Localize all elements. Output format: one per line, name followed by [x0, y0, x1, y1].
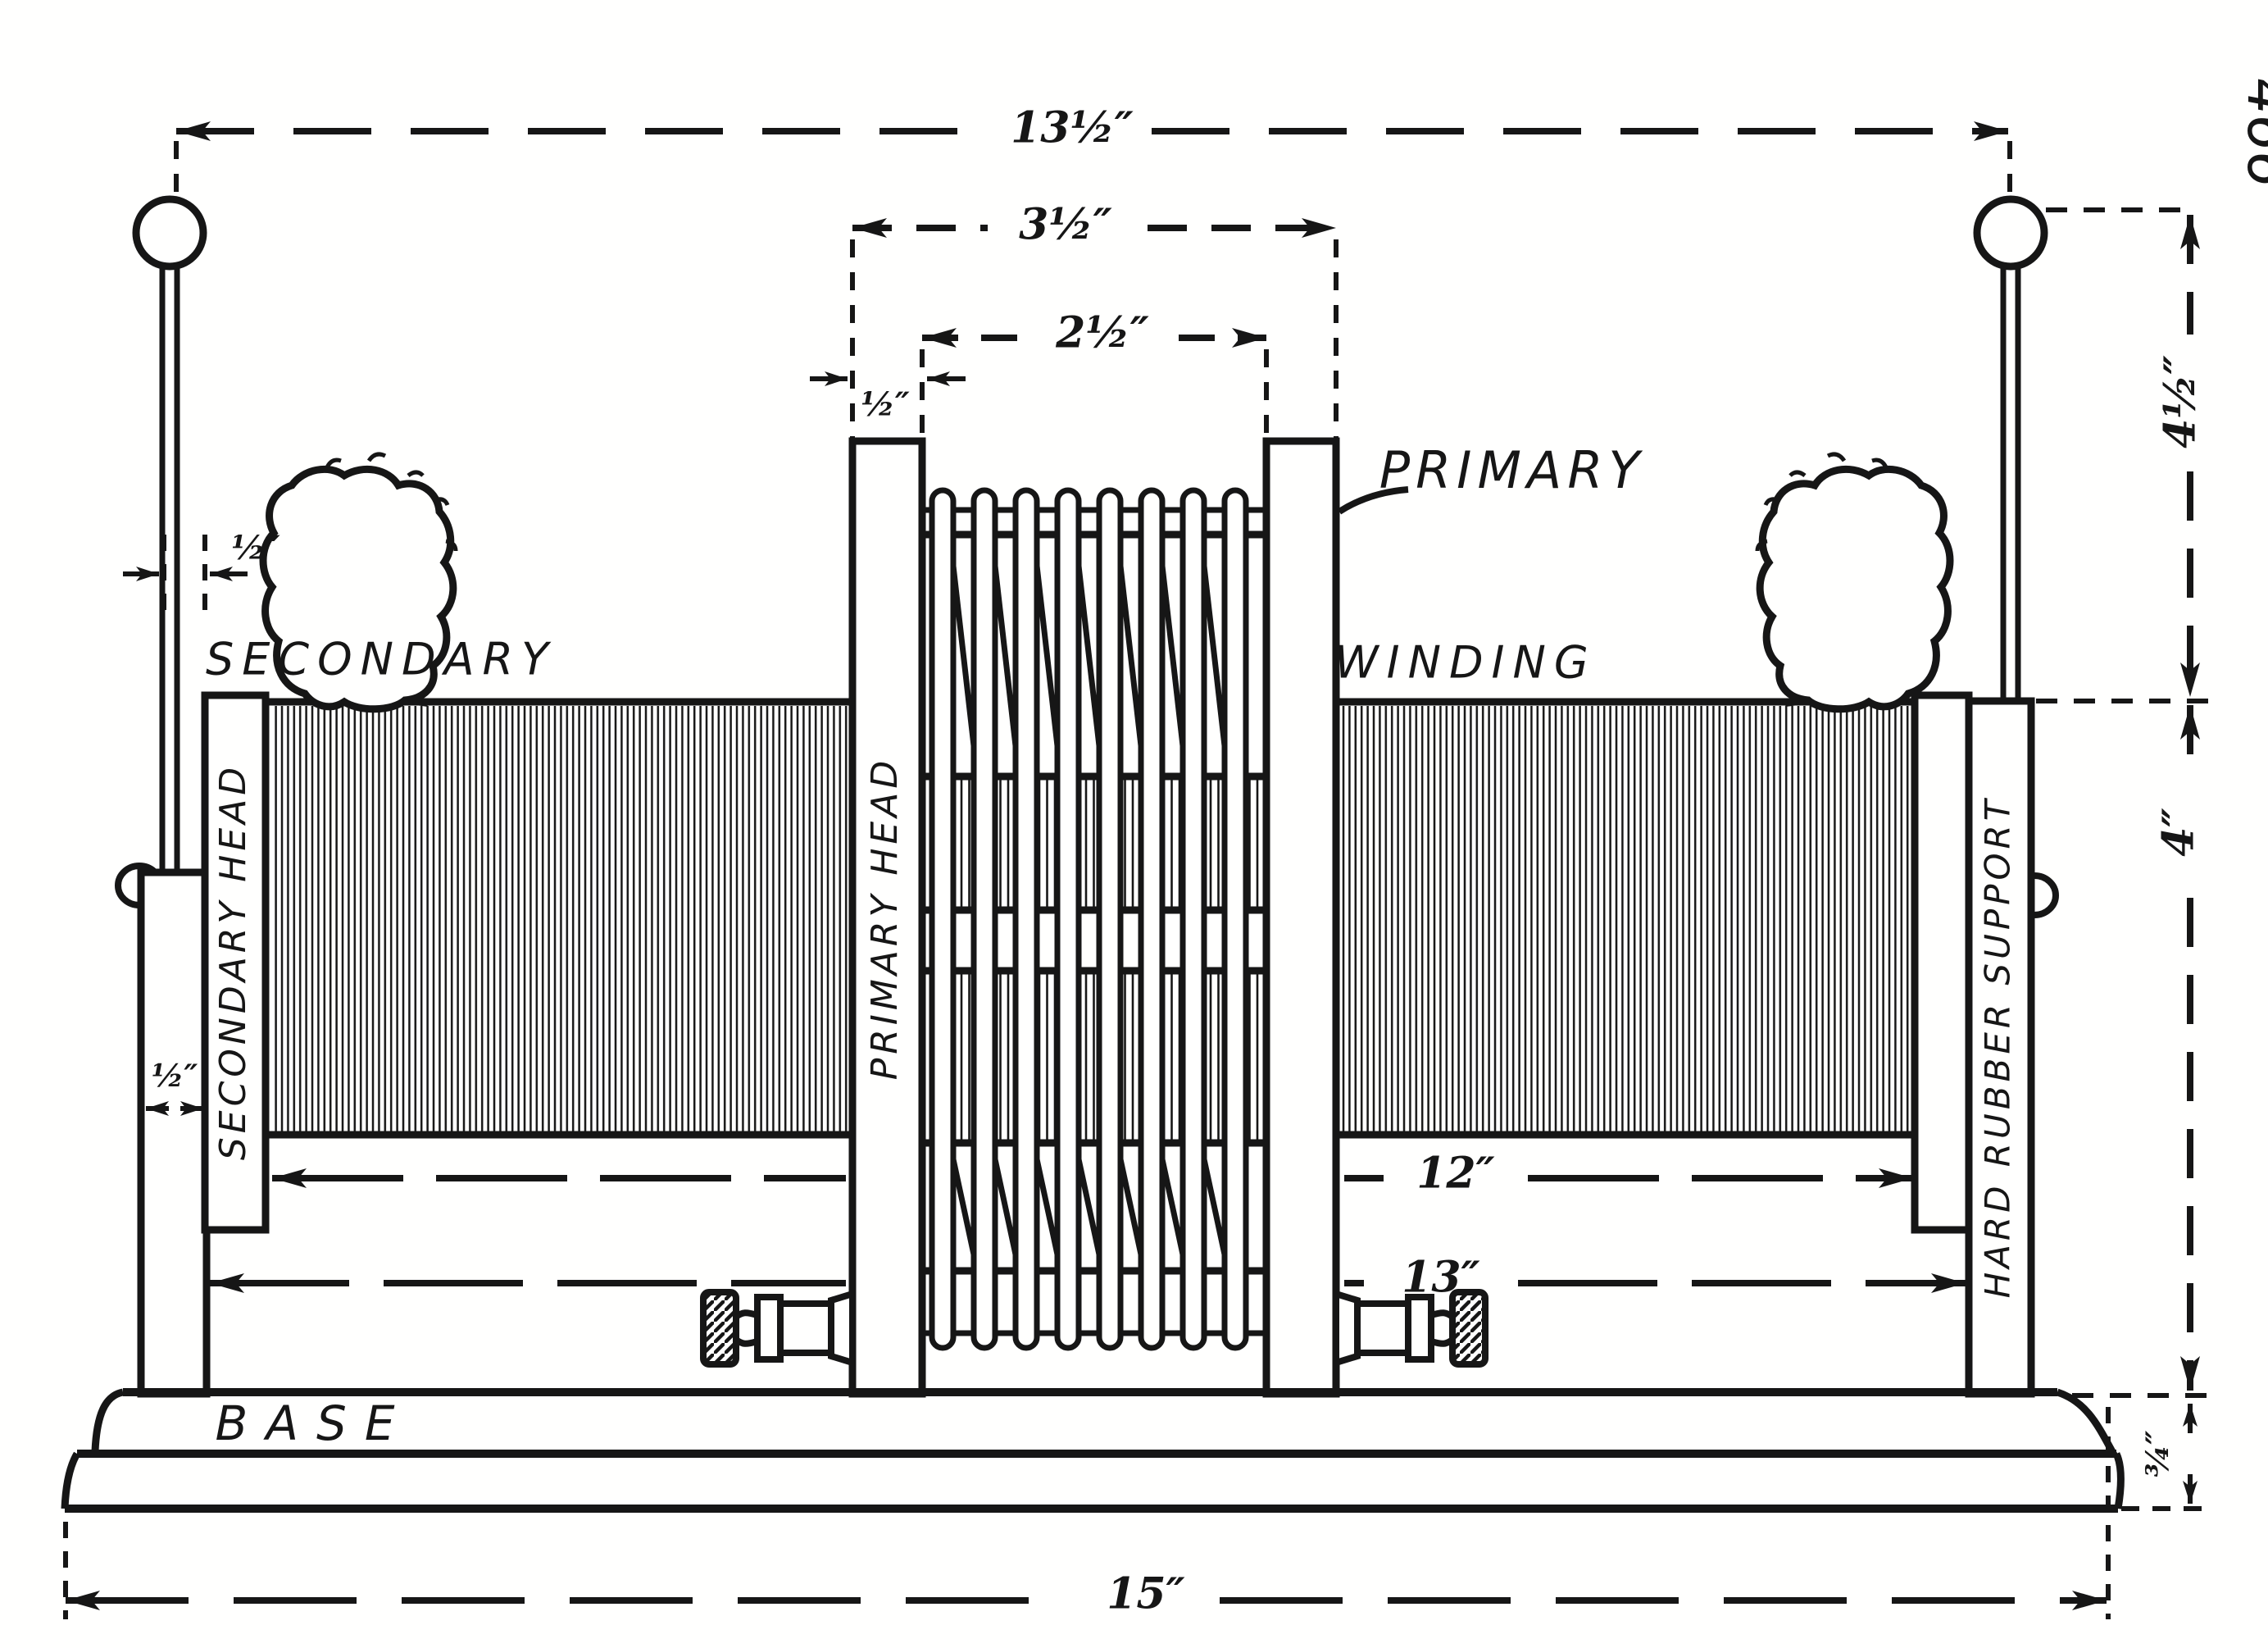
terminal-ball-right — [1977, 199, 2044, 266]
dim-primary-head-thickness: ½″ — [810, 379, 966, 424]
dim-support-span: 13″ — [210, 1253, 1966, 1303]
secondary-winding-right — [1334, 702, 1916, 1135]
secondary-head-plank-right — [1915, 695, 1969, 1230]
base: BASE — [65, 1392, 2121, 1509]
base-label: BASE — [216, 1395, 413, 1451]
dim-terminal-height-label: 4½″ — [2156, 355, 2206, 448]
dim-support-height-label: 4″ — [2154, 808, 2204, 856]
dim-rod-gap: ½″ — [123, 529, 280, 613]
primary-winding — [924, 490, 1265, 1348]
scanned-book-page: SECONDARY HEAD HARD RUBBER SUPPORT PRIMA… — [0, 0, 2268, 1648]
dim-support-span-label: 13″ — [1402, 1253, 1480, 1303]
dim-primary-inner-width-label: 2½″ — [1055, 308, 1149, 358]
dim-primary-head-thickness-label: ½″ — [861, 385, 910, 424]
primary-head-label: PRIMARY HEAD — [864, 757, 906, 1080]
dim-overall-width-label: 13½″ — [1011, 103, 1134, 153]
dim-winding-length: 12″ — [272, 1149, 1913, 1199]
page-number: 466 — [2234, 78, 2268, 188]
dim-primary-inner-width: 2½″ — [922, 308, 1266, 481]
secondary-winding-left-hatch — [272, 706, 848, 1131]
binding-post-right — [1336, 1292, 1485, 1364]
dim-primary-outer-width-label: 3½″ — [1019, 200, 1112, 250]
primary-head-right — [1266, 441, 1336, 1394]
support-post-left — [141, 872, 207, 1394]
primary-label: PRIMARY — [1379, 440, 1646, 500]
dim-support-height: 4″ — [2072, 705, 2213, 1395]
terminal-ball-left — [136, 199, 203, 266]
terminal-rod-right — [2003, 267, 2018, 703]
induction-coil-drawing: SECONDARY HEAD HARD RUBBER SUPPORT PRIMA… — [0, 0, 2268, 1648]
winding-label: WINDING — [1334, 637, 1596, 689]
dim-support-thickness-label: ½″ — [152, 1058, 198, 1095]
dim-overall-width: 13½″ — [176, 103, 2010, 198]
secondary-head-label: SECONDARY HEAD — [212, 763, 254, 1160]
secondary-lead-wire-right — [1757, 454, 1950, 709]
dim-base-length-label: 15″ — [1107, 1569, 1185, 1619]
secondary-winding-right-hatch — [1341, 706, 1910, 1131]
dim-terminal-height: 4½″ — [2036, 210, 2213, 701]
binding-post-right-knob — [1452, 1292, 1485, 1364]
secondary-winding-left — [266, 702, 854, 1135]
dim-base-height-label: ¾″ — [2139, 1431, 2176, 1477]
secondary-label: SECONDARY — [206, 634, 557, 685]
binding-post-left-knob — [703, 1292, 736, 1364]
binding-post-left — [703, 1292, 852, 1364]
hard-rubber-support-label: HARD RUBBER SUPPORT — [1978, 796, 2018, 1299]
dim-rod-gap-label: ½″ — [231, 529, 280, 567]
dim-base-height: ¾″ — [2121, 1404, 2213, 1509]
dim-winding-length-label: 12″ — [1416, 1149, 1495, 1199]
